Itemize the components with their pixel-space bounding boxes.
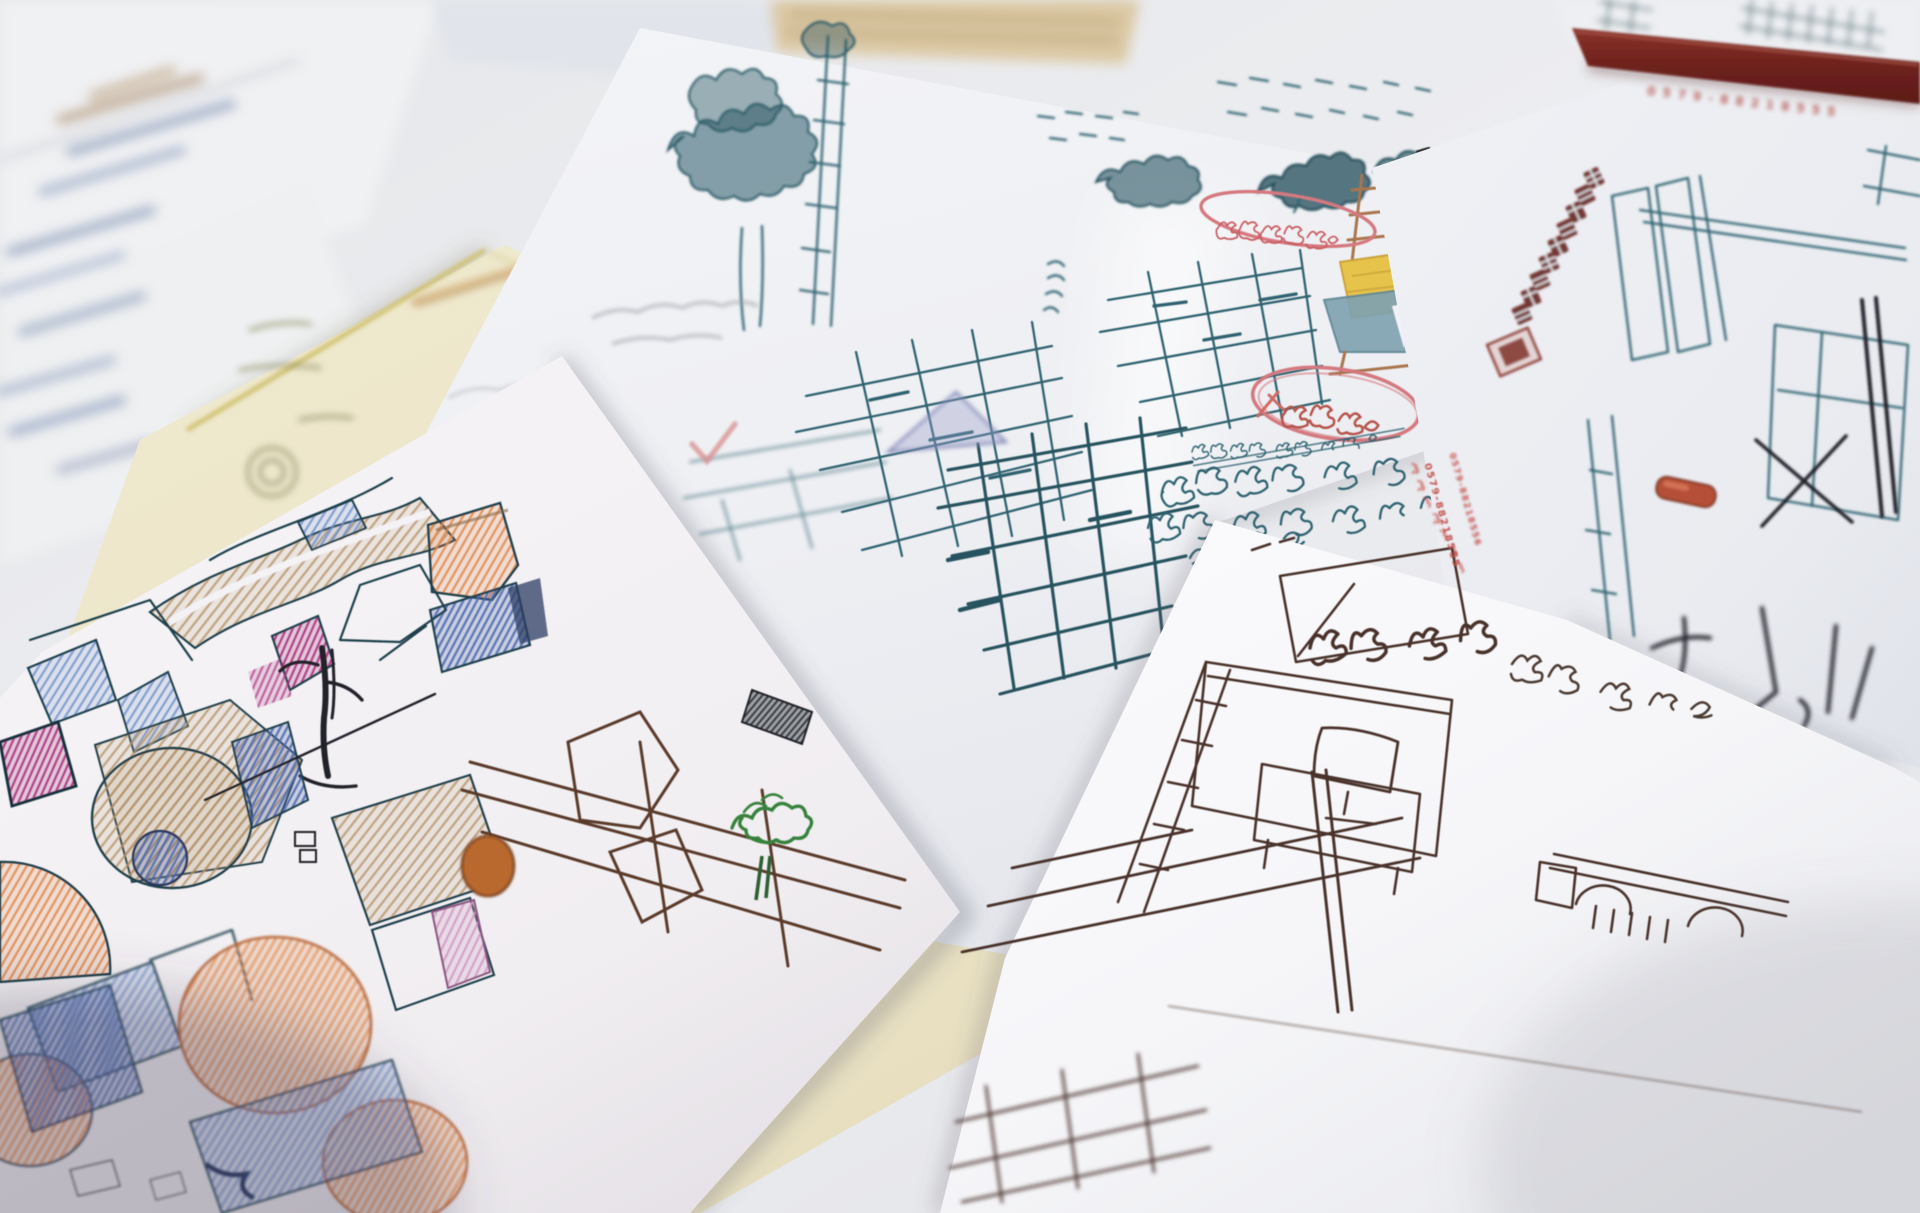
- photo-scene: 0579-88218555 0579-88218556 0579-8821855…: [0, 0, 1920, 1213]
- sketch-photo-canvas: [0, 0, 1920, 1213]
- wood-knob: [462, 836, 514, 896]
